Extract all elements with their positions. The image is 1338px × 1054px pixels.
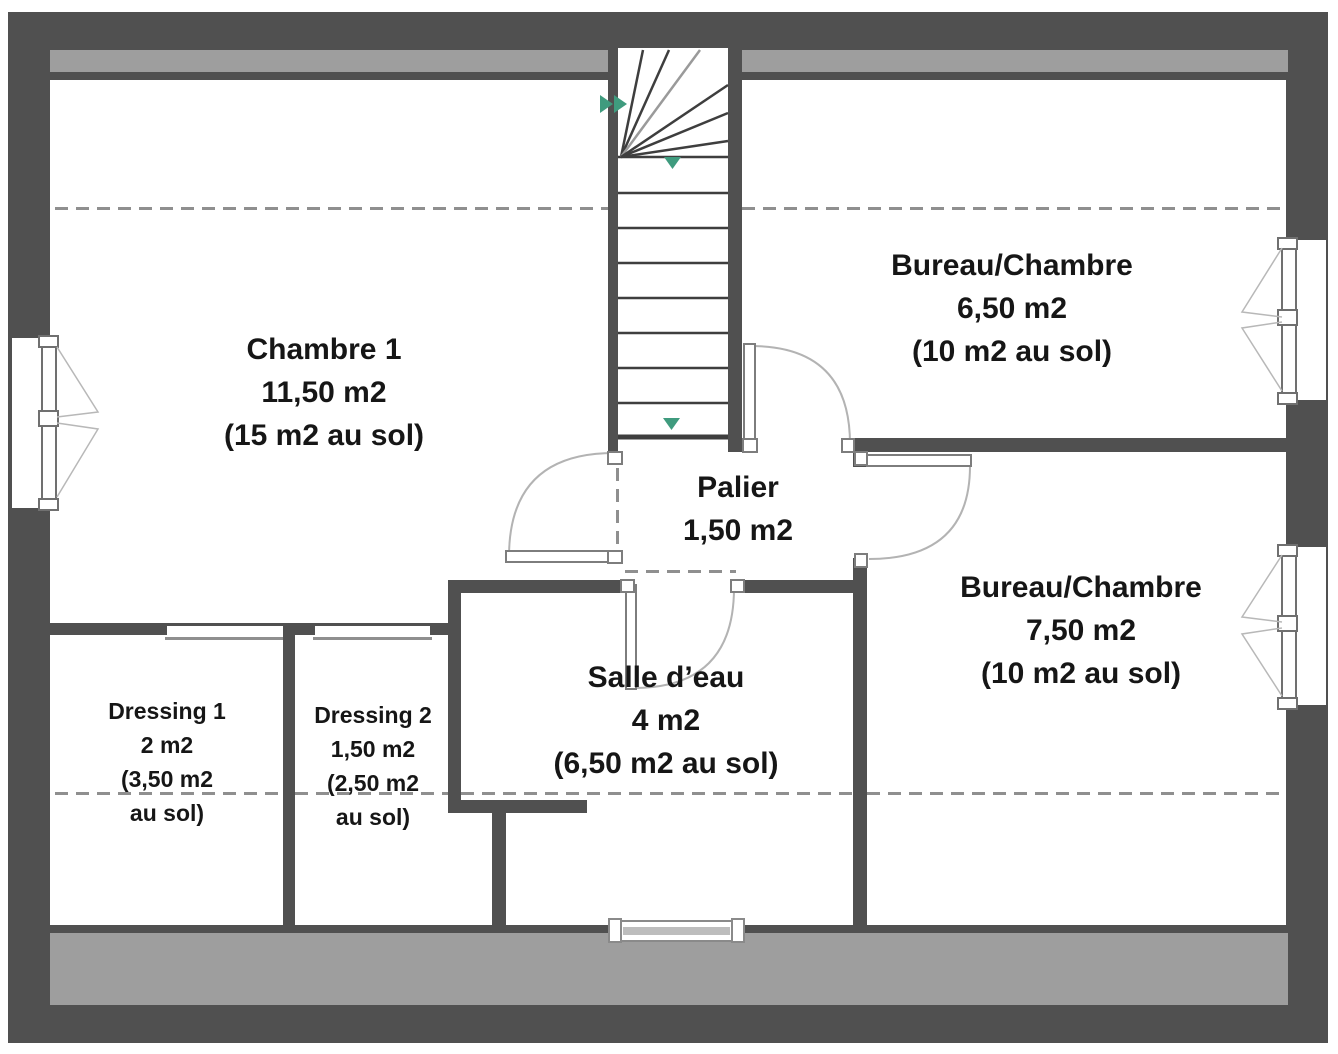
- door-palier-to-bureau-750: [855, 452, 971, 567]
- window-bottom-salle-deau: [609, 919, 744, 942]
- room-floor-area: (6,50 m2 au sol): [553, 742, 778, 785]
- staircase-winder-fan: [621, 50, 728, 157]
- door-palier-to-bureau-650: [743, 344, 854, 452]
- stair-arrow-right-icon: [614, 95, 627, 113]
- window-right-top: [1242, 238, 1297, 404]
- room-floor-area: (3,50 m2: [108, 762, 226, 796]
- room-label-chambre-1: Chambre 1 11,50 m2 (15 m2 au sol): [224, 328, 424, 457]
- window-left: [39, 336, 98, 510]
- room-area: 2 m2: [108, 728, 226, 762]
- room-area: 7,50 m2: [960, 609, 1202, 652]
- room-area: 1,50 m2: [683, 509, 793, 552]
- floor-plan: Chambre 1 11,50 m2 (15 m2 au sol) Bureau…: [0, 0, 1338, 1054]
- casement-swing: [1242, 248, 1282, 317]
- casement-swing: [1242, 555, 1282, 622]
- linework-overlay: [0, 0, 1338, 1054]
- door-leaf: [867, 455, 971, 466]
- room-floor-area: (2,50 m2: [314, 766, 432, 800]
- room-floor-area: (10 m2 au sol): [960, 652, 1202, 695]
- window-right-bottom: [1242, 545, 1297, 709]
- room-area: 4 m2: [553, 699, 778, 742]
- room-floor-area: au sol): [108, 796, 226, 830]
- room-name: Bureau/Chambre: [891, 244, 1133, 287]
- room-name: Bureau/Chambre: [960, 566, 1202, 609]
- room-label-dressing-1: Dressing 1 2 m2 (3,50 m2 au sol): [108, 694, 226, 830]
- staircase: [618, 50, 728, 437]
- room-floor-area: au sol): [314, 800, 432, 834]
- door-leaf: [506, 551, 617, 562]
- casement-swing: [1242, 322, 1282, 391]
- room-label-dressing-2: Dressing 2 1,50 m2 (2,50 m2 au sol): [314, 698, 432, 834]
- room-name: Salle d’eau: [553, 656, 778, 699]
- room-name: Dressing 2: [314, 698, 432, 732]
- casement-swing: [1242, 628, 1282, 696]
- room-label-bureau-chambre-750: Bureau/Chambre 7,50 m2 (10 m2 au sol): [960, 566, 1202, 695]
- room-area: 1,50 m2: [314, 732, 432, 766]
- room-floor-area: (10 m2 au sol): [891, 330, 1133, 373]
- stair-arrow-right-icon: [600, 95, 613, 113]
- stair-arrow-down-icon: [664, 157, 681, 169]
- door-chambre1-to-palier: [506, 452, 622, 563]
- room-area: 6,50 m2: [891, 287, 1133, 330]
- stair-arrow-down-icon: [663, 418, 680, 430]
- room-name: Dressing 1: [108, 694, 226, 728]
- door-leaf: [744, 344, 755, 445]
- casement-swing: [57, 347, 98, 417]
- room-label-salle-deau: Salle d’eau 4 m2 (6,50 m2 au sol): [553, 656, 778, 785]
- room-label-bureau-chambre-650: Bureau/Chambre 6,50 m2 (10 m2 au sol): [891, 244, 1133, 373]
- room-floor-area: (15 m2 au sol): [224, 414, 424, 457]
- casement-swing: [57, 423, 98, 497]
- room-label-palier: Palier 1,50 m2: [683, 466, 793, 552]
- room-area: 11,50 m2: [224, 371, 424, 414]
- room-name: Palier: [683, 466, 793, 509]
- room-name: Chambre 1: [224, 328, 424, 371]
